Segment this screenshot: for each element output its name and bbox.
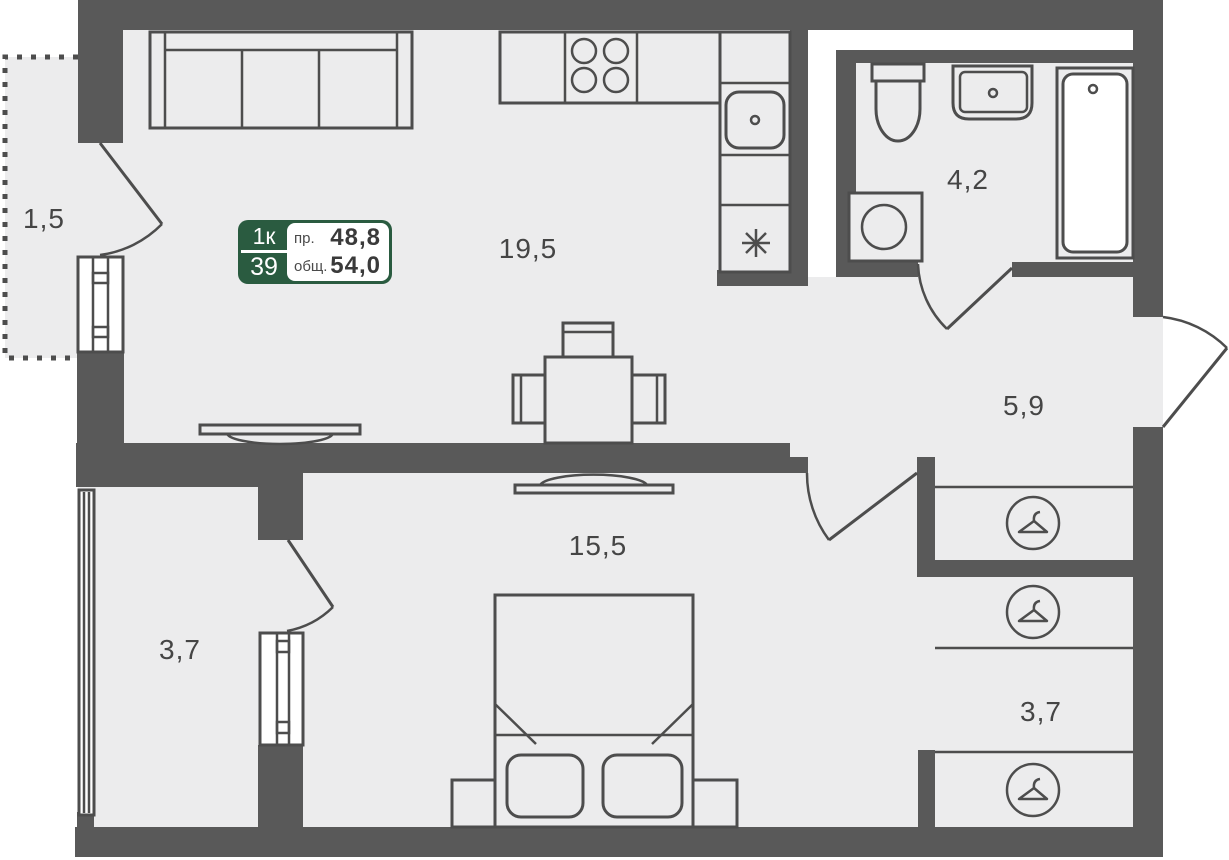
wall-segment bbox=[75, 827, 1163, 857]
interior-window-icon bbox=[260, 633, 303, 745]
bathtub-icon bbox=[1057, 68, 1133, 258]
room-label-bathroom: 4,2 bbox=[947, 164, 989, 196]
floor-plan: 1,5 19,5 4,2 5,9 15,5 3,7 3,7 1к 39 пр. … bbox=[0, 0, 1229, 860]
wall-segment bbox=[836, 262, 918, 277]
living-area-label: пр. bbox=[294, 230, 315, 247]
room-label-office: 3,7 bbox=[159, 634, 201, 666]
wall-segment bbox=[76, 443, 790, 457]
wall-segment bbox=[78, 0, 123, 143]
office-window-icon bbox=[79, 490, 94, 815]
pillow-icon bbox=[507, 755, 583, 817]
washing-machine-icon bbox=[849, 193, 922, 261]
wall-segment bbox=[918, 560, 1133, 577]
wall-segment bbox=[1133, 427, 1163, 857]
badge-area-panel: пр. 48,8 общ. 54,0 bbox=[287, 223, 389, 281]
wall-segment bbox=[258, 745, 303, 827]
wall-segment bbox=[1012, 262, 1133, 277]
apartment-info-badge: 1к 39 пр. 48,8 общ. 54,0 bbox=[238, 220, 392, 284]
wall-segment bbox=[917, 457, 935, 577]
wall-segment bbox=[76, 457, 808, 473]
washbasin-icon bbox=[953, 66, 1032, 119]
balcony-window-icon bbox=[78, 257, 123, 352]
room-label-wardrobe-area: 3,7 bbox=[1020, 696, 1062, 728]
room-label-balcony: 1,5 bbox=[23, 203, 65, 235]
sofa-icon bbox=[150, 32, 412, 128]
floor-plan-drawing bbox=[0, 0, 1229, 860]
total-area-label: общ. bbox=[294, 258, 327, 275]
wall-segment bbox=[258, 473, 303, 540]
wall-segment bbox=[836, 50, 1133, 63]
wall-segment bbox=[77, 350, 124, 443]
apartment-number: 39 bbox=[241, 253, 287, 282]
total-area-value: 54,0 bbox=[330, 252, 381, 280]
nightstand-icon bbox=[693, 780, 737, 827]
wall-segment bbox=[918, 750, 935, 827]
wall-segment bbox=[76, 473, 258, 487]
fridge-icon bbox=[742, 229, 770, 257]
bed-icon bbox=[452, 595, 737, 827]
total-area-row: общ. 54,0 bbox=[294, 252, 381, 280]
wall-segment bbox=[78, 0, 1163, 30]
badge-left-column: 1к 39 bbox=[241, 223, 287, 281]
kitchen-sink-icon bbox=[726, 92, 784, 148]
living-area-value: 48,8 bbox=[330, 224, 381, 252]
apartment-type: 1к bbox=[241, 223, 287, 253]
wall-segment bbox=[1133, 30, 1163, 317]
nightstand-icon bbox=[452, 780, 495, 827]
toilet-icon bbox=[872, 64, 924, 141]
room-label-kitchen-living: 19,5 bbox=[499, 233, 558, 265]
living-area-row: пр. 48,8 bbox=[294, 224, 381, 252]
wall-segment bbox=[790, 30, 808, 272]
pillow-icon bbox=[603, 755, 682, 817]
room-label-bedroom: 15,5 bbox=[569, 530, 628, 562]
room-label-hallway: 5,9 bbox=[1003, 390, 1045, 422]
entrance-door-icon bbox=[1163, 317, 1227, 427]
